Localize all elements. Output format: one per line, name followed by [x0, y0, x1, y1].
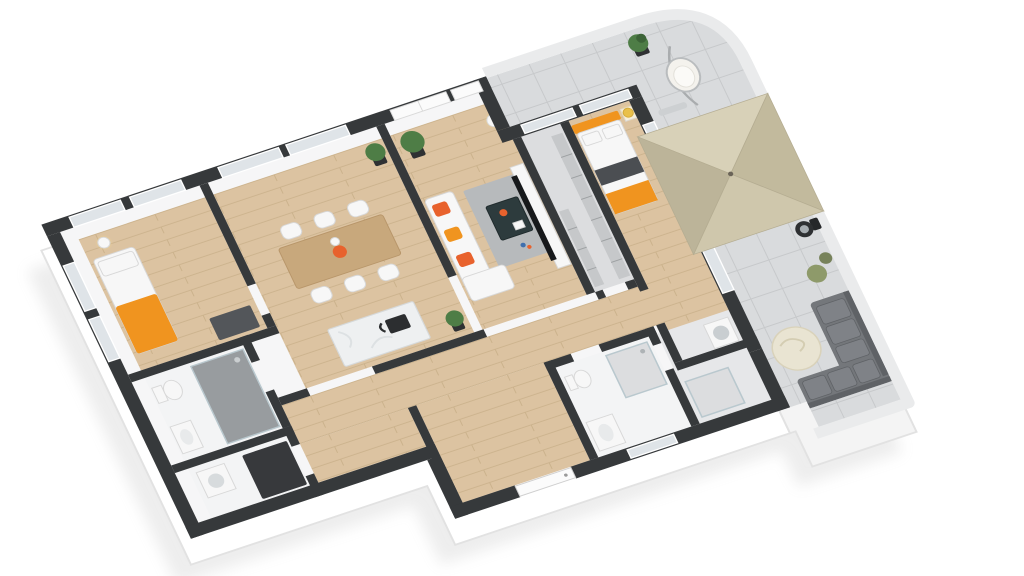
- floor-plan-3d-render: [0, 0, 1024, 576]
- floor-plan-stage: [0, 0, 1024, 576]
- floor-plan: [40, 0, 914, 576]
